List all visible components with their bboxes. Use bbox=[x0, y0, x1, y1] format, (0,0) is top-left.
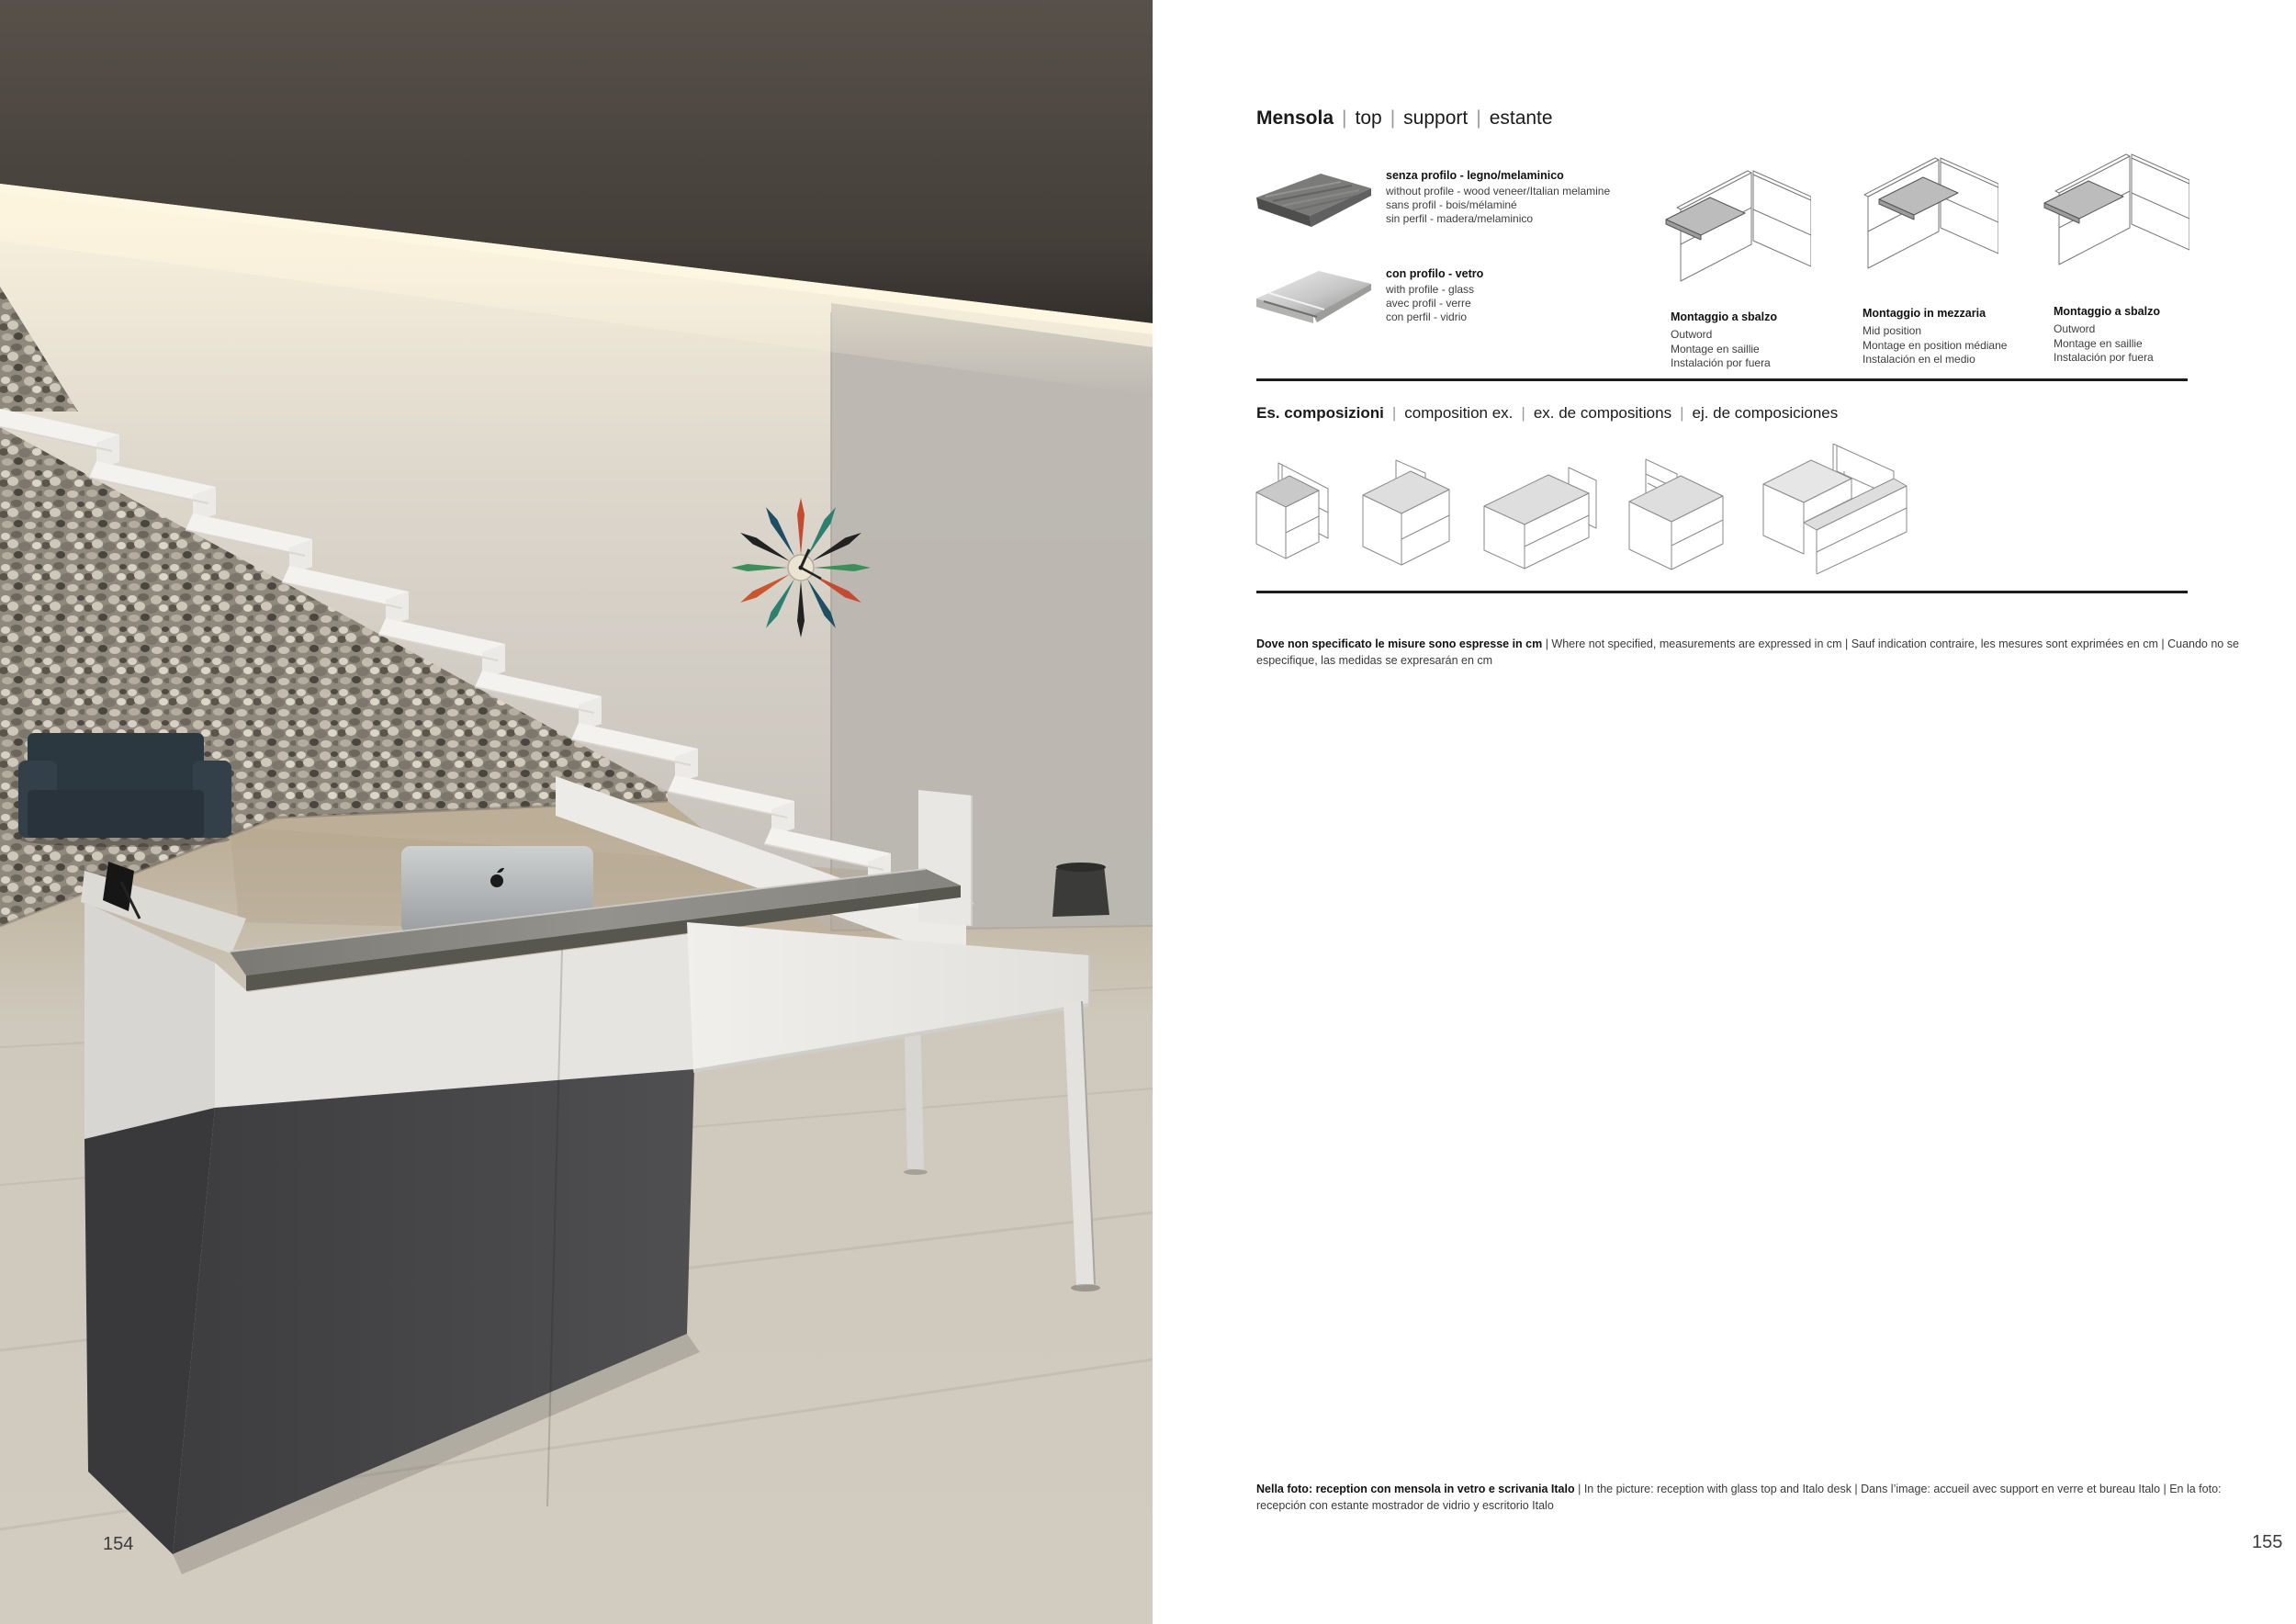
material-label: con profilo - vetro bbox=[1386, 267, 1483, 280]
composition-example-2 bbox=[1357, 457, 1464, 574]
page-number-left: 154 bbox=[103, 1534, 133, 1555]
apple-logo-icon bbox=[490, 874, 503, 887]
photo-caption-bold: Nella foto: reception con mensola in vet… bbox=[1256, 1483, 1575, 1495]
measurement-note: Dove non specificato le misure sono espr… bbox=[1256, 636, 2262, 669]
heading-separator: | bbox=[1513, 404, 1533, 422]
compositions-heading-en: composition ex. bbox=[1404, 404, 1513, 422]
reception-photo bbox=[0, 0, 1153, 1624]
mounting-title: Montaggio a sbalzo bbox=[2054, 305, 2228, 318]
material-line-es: con perfil - vidrio bbox=[1386, 310, 1483, 324]
mounting-line-en: Outword bbox=[1671, 328, 1845, 343]
material-line-fr: sans profil - bois/mélaminé bbox=[1386, 198, 1610, 212]
page-title: Mensola|top|support|estante bbox=[1256, 107, 1553, 130]
desk-right-end-panel bbox=[918, 790, 972, 926]
floor-dark-object bbox=[1052, 863, 1109, 917]
compositions-heading: Es. composizioni|composition ex.|ex. de … bbox=[1256, 404, 1838, 423]
section-rule-bottom bbox=[1256, 591, 2188, 593]
glass-swatch bbox=[1256, 271, 1371, 329]
title-separator: | bbox=[1468, 107, 1489, 129]
mounting-line-es: Instalación en el medio bbox=[1863, 353, 2046, 367]
title-separator: | bbox=[1382, 107, 1403, 129]
composition-example-4 bbox=[1622, 454, 1738, 577]
mounting-line-fr: Montage en position médiane bbox=[1863, 339, 2046, 354]
material-line-en: without profile - wood veneer/Italian me… bbox=[1386, 185, 1610, 198]
compositions-heading-it: Es. composizioni bbox=[1256, 404, 1384, 422]
material-line-es: sin perfil - madera/melaminico bbox=[1386, 212, 1610, 226]
material-glass-text: con profilo - vetro with profile - glass… bbox=[1386, 267, 1483, 324]
mounting-caption-2: Montaggio in mezzaria Mid position Monta… bbox=[1863, 307, 2046, 367]
composition-example-3 bbox=[1480, 462, 1604, 574]
mounting-title: Montaggio a sbalzo bbox=[1671, 310, 1845, 323]
composition-example-1 bbox=[1251, 452, 1341, 577]
compositions-heading-fr: ex. de compositions bbox=[1534, 404, 1671, 422]
mounting-line-es: Instalación por fuera bbox=[2054, 351, 2228, 366]
title-alt-es: estante bbox=[1490, 107, 1553, 129]
mounting-line-fr: Montage en saillie bbox=[1671, 343, 1845, 357]
heading-separator: | bbox=[1384, 404, 1404, 422]
title-product: Mensola bbox=[1256, 107, 1334, 129]
mounting-line-fr: Montage en saillie bbox=[2054, 337, 2228, 352]
measurement-note-bold: Dove non specificato le misure sono espr… bbox=[1256, 637, 1542, 650]
material-line-en: with profile - glass bbox=[1386, 283, 1483, 297]
mounting-diagram-outward-1 bbox=[1664, 167, 1811, 305]
mounting-caption-1: Montaggio a sbalzo Outword Montage en sa… bbox=[1671, 310, 1845, 371]
heading-separator: | bbox=[1671, 404, 1692, 422]
section-rule-top bbox=[1256, 378, 2188, 381]
right-wall bbox=[831, 303, 1153, 931]
compositions-heading-es: ej. de composiciones bbox=[1693, 404, 1839, 422]
title-separator: | bbox=[1334, 107, 1355, 129]
page-number-right: 155 bbox=[2252, 1532, 2282, 1553]
mounting-caption-3: Montaggio a sbalzo Outword Montage en sa… bbox=[2054, 305, 2228, 366]
photo-caption: Nella foto: reception con mensola in vet… bbox=[1256, 1481, 2262, 1514]
mounting-line-en: Mid position bbox=[1863, 324, 2046, 339]
title-alt-en: top bbox=[1356, 107, 1382, 129]
mounting-diagram-outward-2 bbox=[2043, 151, 2189, 288]
mounting-diagram-mid bbox=[1851, 154, 1998, 292]
material-label: senza profilo - legno/melaminico bbox=[1386, 169, 1610, 182]
mounting-line-en: Outword bbox=[2054, 322, 2228, 337]
material-line-fr: avec profil - verre bbox=[1386, 297, 1483, 310]
material-wood-text: senza profilo - legno/melaminico without… bbox=[1386, 169, 1610, 226]
composition-example-5 bbox=[1756, 444, 1914, 574]
mounting-title: Montaggio in mezzaria bbox=[1863, 307, 2046, 320]
mounting-line-es: Instalación por fuera bbox=[1671, 356, 1845, 371]
title-alt-fr: support bbox=[1403, 107, 1468, 129]
catalog-spread: { "page_numbers": { "left": "154", "righ… bbox=[0, 0, 2296, 1624]
wood-melamine-swatch bbox=[1256, 174, 1371, 232]
armchair bbox=[18, 733, 231, 847]
